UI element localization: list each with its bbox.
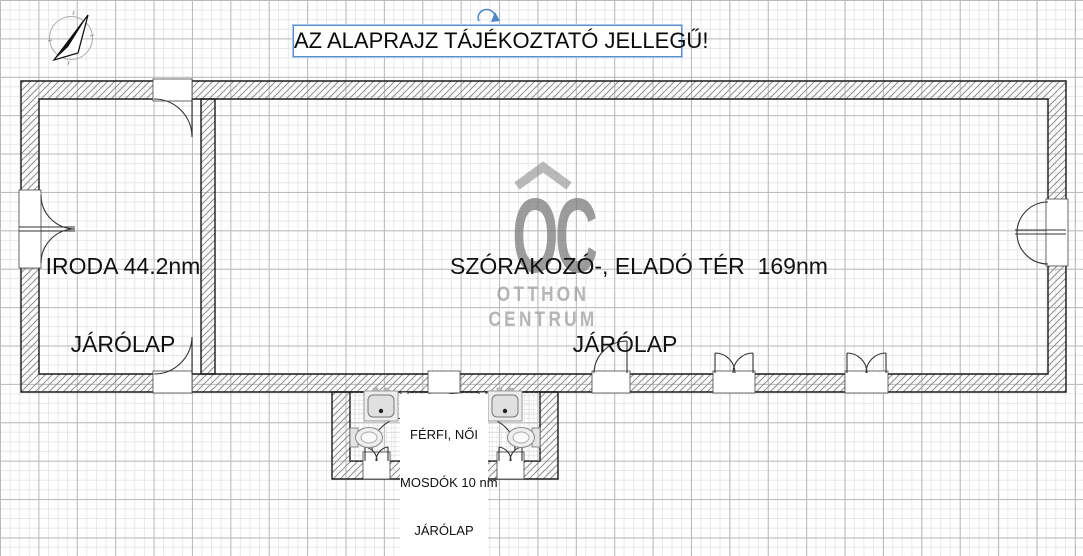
door-swing-top-iroda [154, 99, 192, 137]
door-opening-right-double [1046, 199, 1068, 266]
sink-icon-right [488, 388, 522, 421]
rotation-handle-icon[interactable] [478, 10, 500, 22]
room-label-iroda: IRODA 44.2nm JÁRÓLAP [42, 201, 204, 383]
room-name-main: SZÓRAKOZÓ-, ELADÓ TÉR 169nm [450, 253, 800, 279]
sink-icon-left [364, 388, 398, 421]
floorplan-page: { "title": { "text": "AZ ALAPRAJZ TÁJÉKO… [0, 0, 1083, 500]
toilet-icon-left [350, 428, 383, 448]
title-box[interactable]: AZ ALAPRAJZ TÁJÉKOZTATÓ JELLEGŰ! [293, 25, 682, 57]
door-swing-bottom-double-2 [847, 353, 886, 373]
restroom-line1: FÉRFI, NŐI [400, 427, 488, 443]
restroom-line2: MOSDÓK 10 nm [400, 475, 488, 491]
door-opening-top-iroda [153, 79, 192, 101]
toilet-icon-right [508, 428, 541, 448]
compass-icon [48, 11, 94, 65]
room-name-iroda: IRODA 44.2nm [42, 253, 204, 279]
door-opening-bottom-double-2 [845, 371, 888, 393]
room-label-restroom: FÉRFI, NŐI MOSDÓK 10 nm JÁRÓLAP [400, 394, 488, 556]
room-flooring-main: JÁRÓLAP [450, 331, 800, 357]
room-flooring-iroda: JÁRÓLAP [42, 331, 204, 357]
room-label-main: SZÓRAKOZÓ-, ELADÓ TÉR 169nm JÁRÓLAP [450, 201, 800, 383]
restroom-line3: JÁRÓLAP [400, 523, 488, 539]
door-opening-left-double [19, 190, 41, 268]
